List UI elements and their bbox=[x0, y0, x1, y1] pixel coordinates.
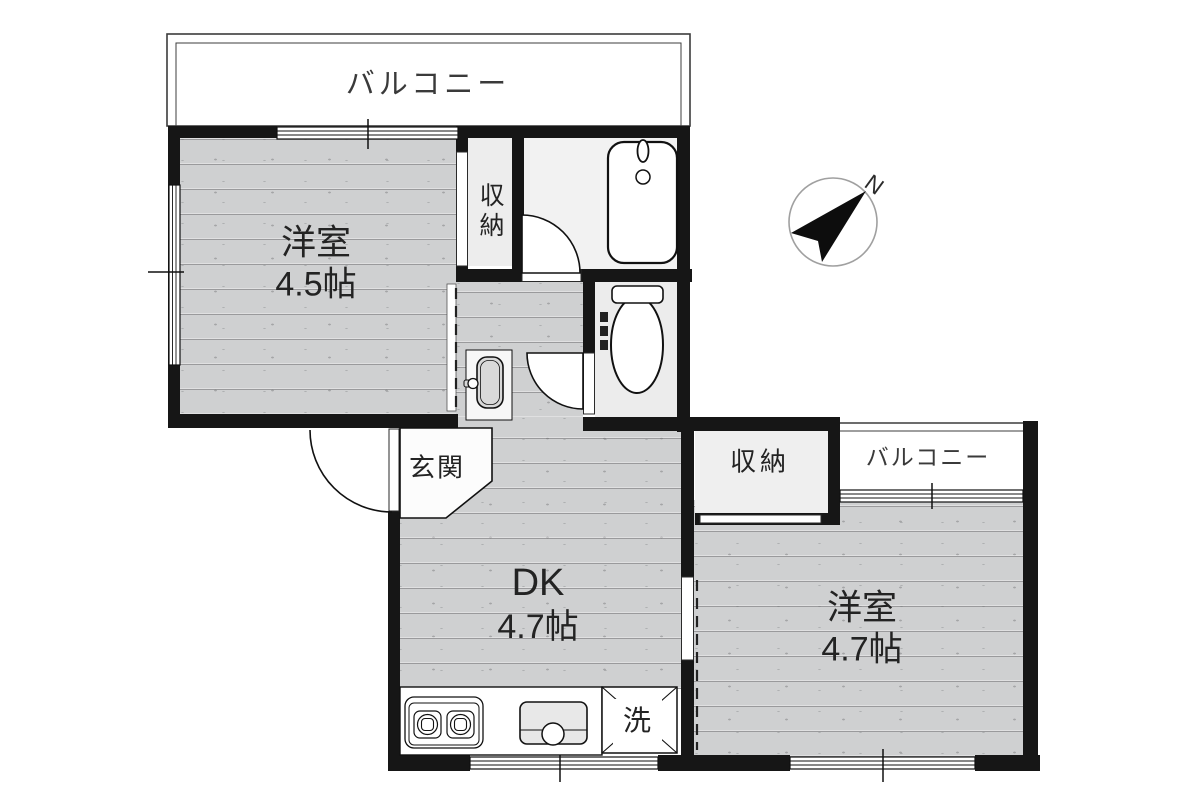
western-room-2-label: 洋室 4.7帖 bbox=[821, 588, 902, 671]
entrance-door-gap bbox=[389, 429, 399, 511]
stove-2-burner-icon bbox=[405, 697, 483, 748]
dk-room2-opening bbox=[682, 577, 694, 660]
floorplan: バルコニー 洋室 4.5帖 収納 玄関 DK 4.7帖 洗 収納 バルコニー 洋… bbox=[0, 0, 1200, 800]
window-room2-bottom bbox=[790, 749, 975, 782]
kitchen-sink-icon bbox=[520, 702, 587, 745]
bath-door-arc bbox=[522, 215, 580, 273]
bathtub bbox=[608, 140, 677, 263]
western-room-2-name: 洋室 bbox=[821, 588, 902, 630]
closet-upper-label: 収納 bbox=[475, 182, 505, 242]
closet-right-sliding-gap bbox=[700, 515, 821, 523]
dining-kitchen-name: DK bbox=[497, 561, 578, 607]
washbasin bbox=[464, 350, 512, 420]
dining-kitchen-label: DK 4.7帖 bbox=[497, 561, 578, 647]
entrance-label: 玄関 bbox=[409, 452, 465, 483]
sliding-gap-room1-closet bbox=[457, 152, 468, 266]
window-room1-left bbox=[148, 185, 184, 365]
closet-right-label: 収納 bbox=[730, 446, 790, 477]
wall-openings bbox=[389, 152, 821, 660]
plan-linework bbox=[0, 0, 1200, 800]
entrance-door-arc bbox=[310, 430, 392, 512]
western-room-1-name: 洋室 bbox=[275, 223, 356, 265]
room1-sliding-panel bbox=[447, 284, 456, 411]
dining-kitchen-size: 4.7帖 bbox=[497, 606, 578, 647]
laundry-label: 洗 bbox=[623, 704, 651, 738]
western-room-1-label: 洋室 4.5帖 bbox=[275, 223, 356, 306]
toilet-door-gap bbox=[584, 353, 595, 414]
western-room-2-size: 4.7帖 bbox=[821, 630, 902, 671]
kitchen-counter bbox=[400, 687, 602, 755]
western-room-1-size: 4.5帖 bbox=[275, 265, 356, 306]
toilet-door-arc bbox=[527, 353, 583, 409]
compass-north-arrow bbox=[791, 191, 866, 262]
balcony-right-label: バルコニー bbox=[866, 444, 991, 472]
toilet bbox=[600, 286, 663, 393]
balcony-top-label: バルコニー bbox=[346, 68, 510, 103]
